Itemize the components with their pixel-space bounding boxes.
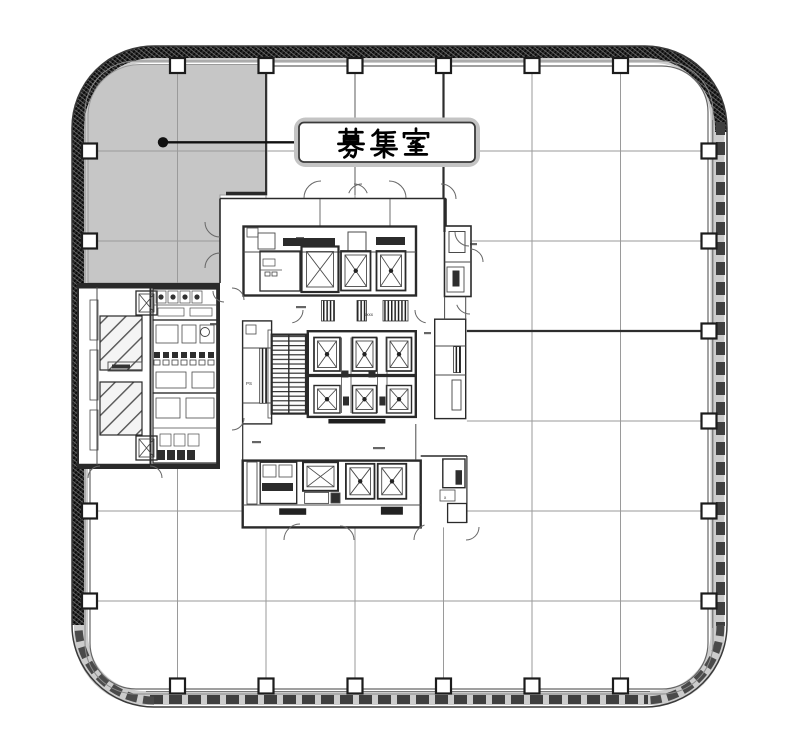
svg-text:PS: PS [246, 381, 252, 386]
svg-text:xxxx: xxxx [364, 312, 374, 317]
